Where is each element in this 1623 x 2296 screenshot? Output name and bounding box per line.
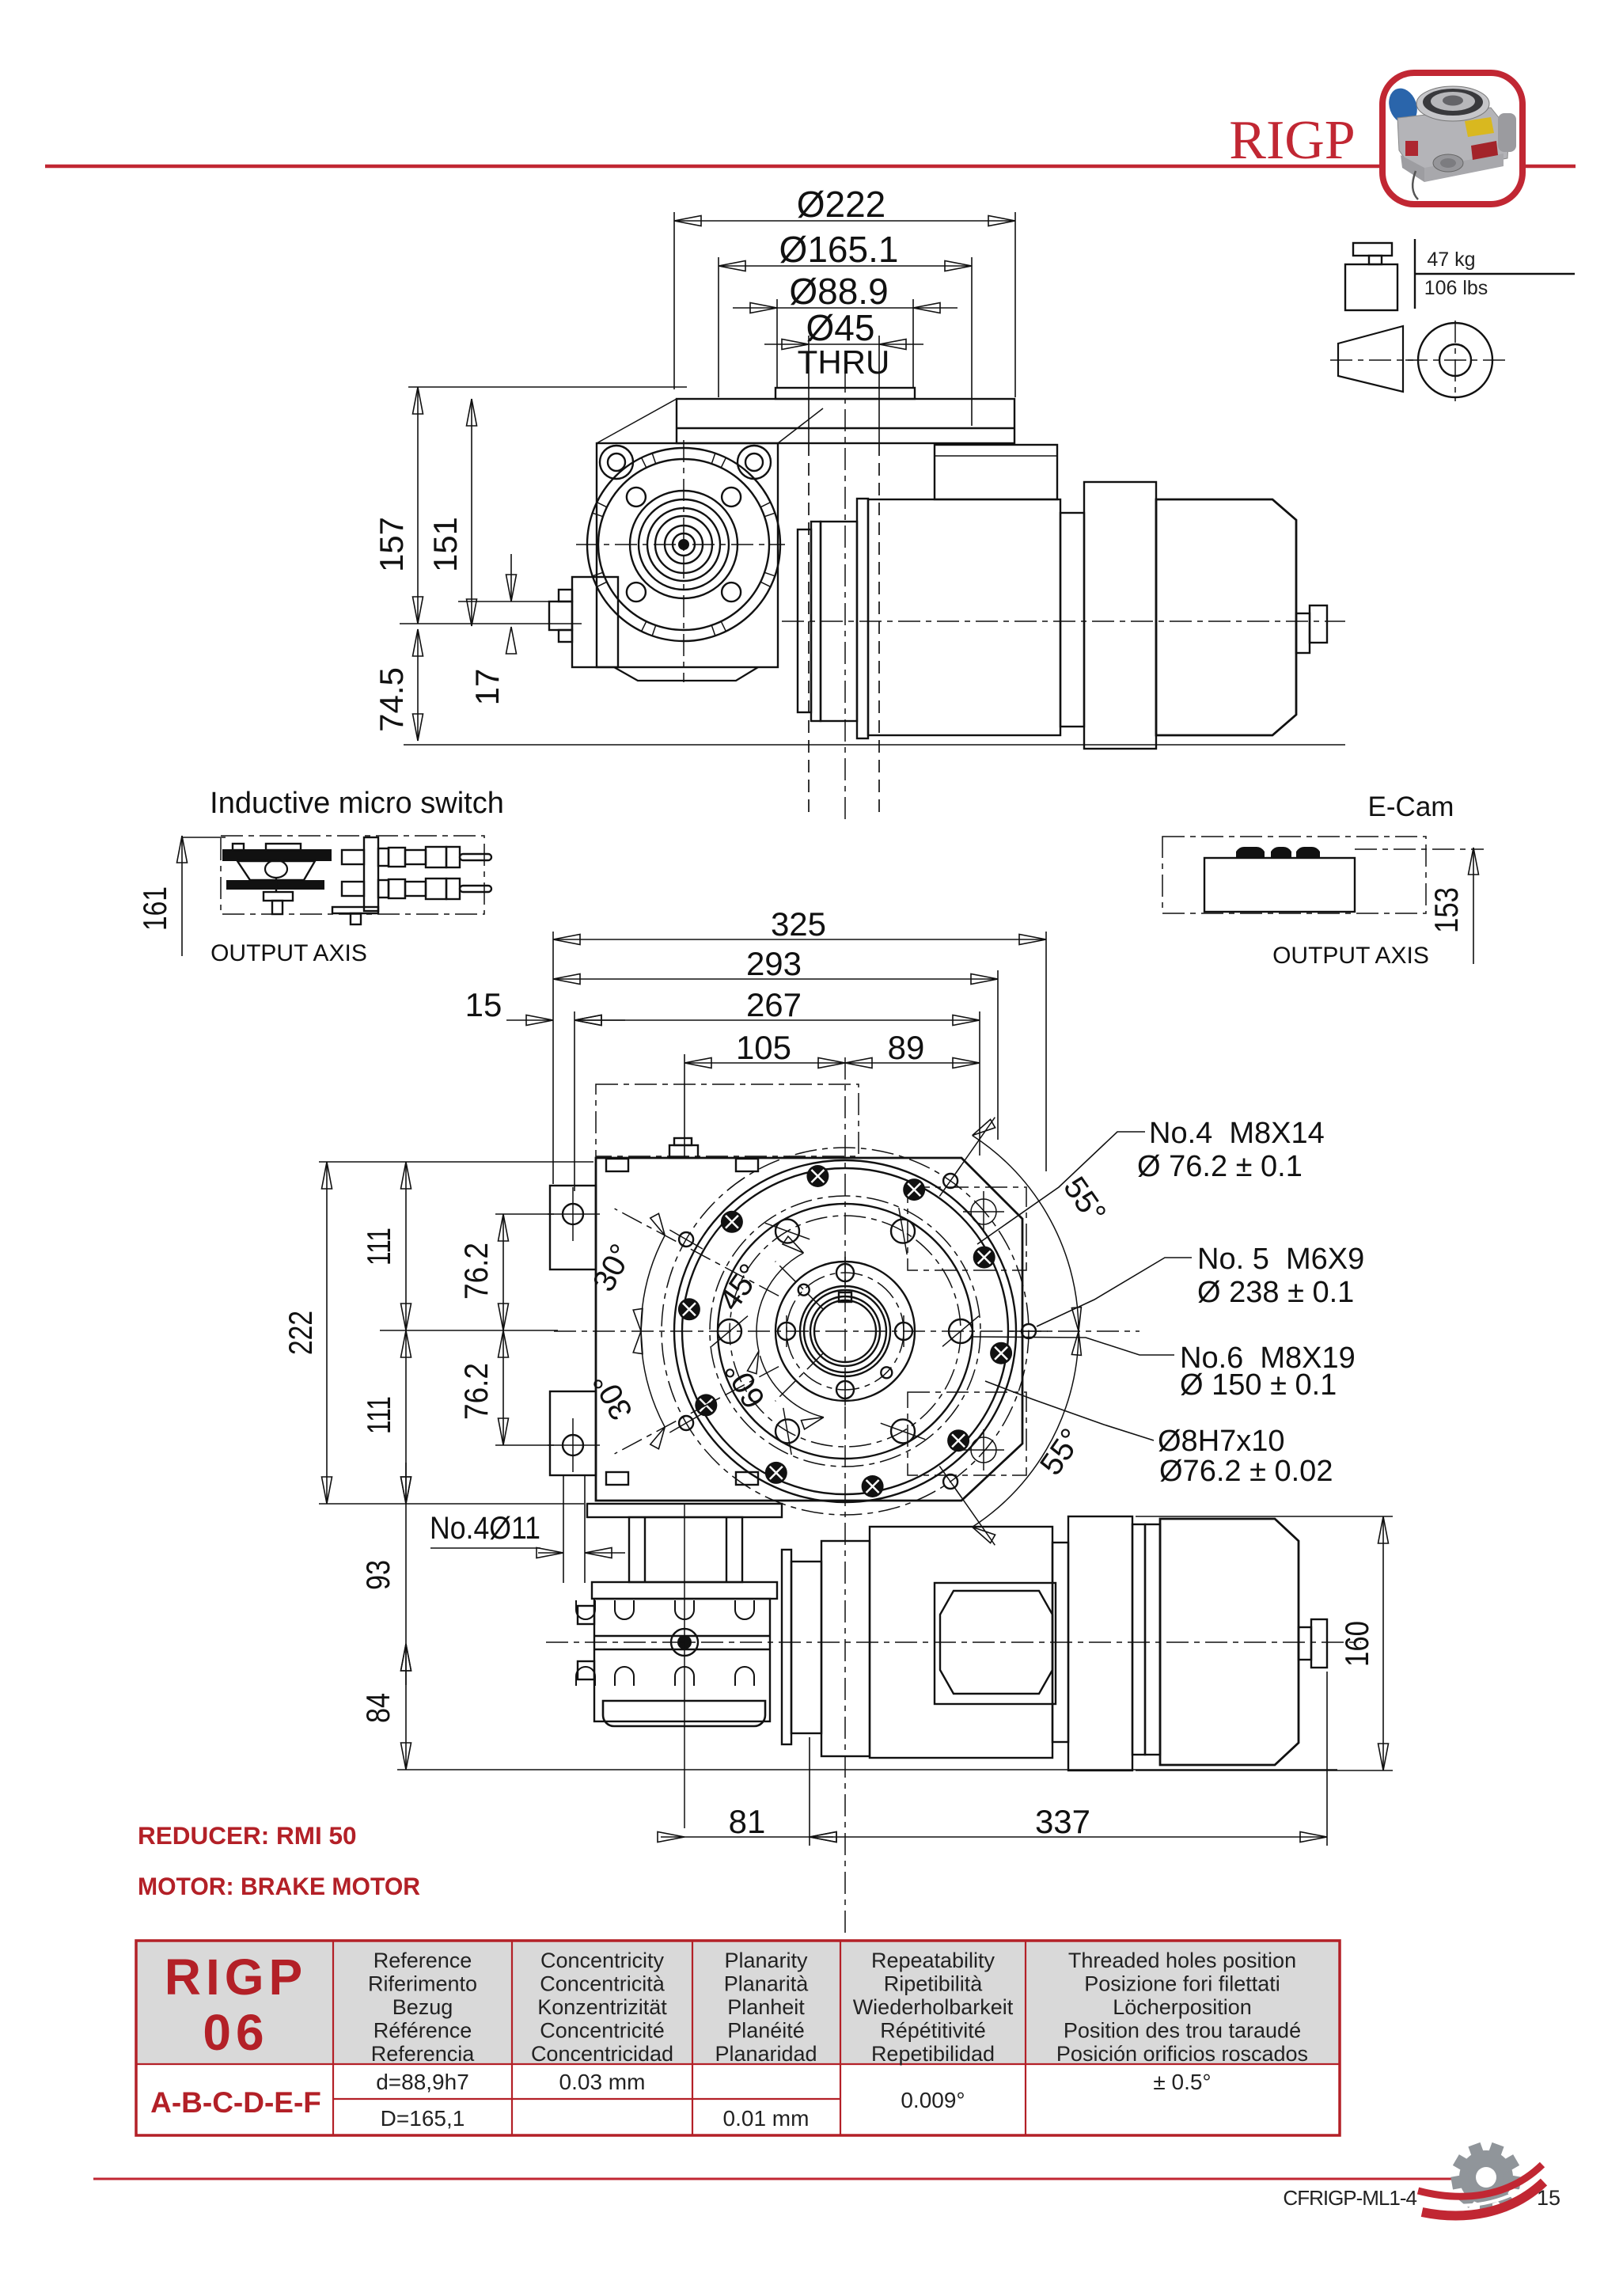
svg-text:337: 337 — [1035, 1803, 1090, 1840]
svg-text:Planarità: Planarità — [724, 1972, 810, 1996]
svg-text:157: 157 — [373, 517, 410, 572]
svg-text:A-B-C-D-E-F: A-B-C-D-E-F — [150, 2086, 321, 2119]
svg-text:111: 111 — [360, 1396, 397, 1434]
svg-text:Concentricity: Concentricity — [540, 1949, 665, 1972]
svg-text:Ripetibilità: Ripetibilità — [884, 1972, 984, 1996]
svg-text:15: 15 — [1537, 2186, 1560, 2210]
svg-text:Inductive micro switch: Inductive micro switch — [210, 787, 504, 820]
svg-text:No.4 M8X14: No.4 M8X14 — [1149, 1117, 1325, 1150]
svg-text:47 kg: 47 kg — [1427, 249, 1475, 271]
svg-text:153: 153 — [1428, 887, 1465, 933]
svg-text:Löcherposition: Löcherposition — [1113, 1995, 1252, 2019]
svg-text:RIGP: RIGP — [1229, 110, 1355, 171]
svg-text:Repeatability: Repeatability — [871, 1949, 995, 1972]
svg-text:84: 84 — [359, 1693, 396, 1723]
svg-text:Referencia: Referencia — [371, 2042, 476, 2066]
svg-text:Bezug: Bezug — [392, 1995, 453, 2019]
svg-text:Concentricità: Concentricità — [540, 1972, 666, 1996]
svg-text:No.4Ø11: No.4Ø11 — [430, 1511, 540, 1546]
svg-text:76.2: 76.2 — [457, 1243, 495, 1300]
svg-text:76.2: 76.2 — [457, 1363, 495, 1420]
svg-text:Concentricité: Concentricité — [540, 2019, 665, 2043]
svg-text:222: 222 — [282, 1311, 319, 1355]
svg-text:Référence: Référence — [374, 2019, 472, 2043]
svg-text:Ø45: Ø45 — [806, 307, 875, 348]
svg-text:Position des trou taraudé: Position des trou taraudé — [1064, 2019, 1301, 2043]
svg-text:60°: 60° — [719, 1355, 772, 1414]
svg-text:55°: 55° — [1033, 1422, 1090, 1482]
svg-text:Ø165.1: Ø165.1 — [779, 229, 899, 270]
svg-text:No. 5 M6X9: No. 5 M6X9 — [1197, 1243, 1364, 1276]
svg-text:Konzentrizität: Konzentrizität — [537, 1995, 667, 2019]
svg-text:267: 267 — [746, 986, 802, 1023]
svg-text:D=165,1: D=165,1 — [381, 2106, 465, 2131]
svg-text:Ø 238 ± 0.1: Ø 238 ± 0.1 — [1197, 1276, 1354, 1309]
svg-text:Posición orificios roscados: Posición orificios roscados — [1056, 2042, 1308, 2066]
svg-text:293: 293 — [746, 945, 802, 982]
svg-text:Threaded holes position: Threaded holes position — [1068, 1949, 1296, 1972]
svg-text:Répétitivité: Répétitivité — [880, 2019, 986, 2043]
svg-text:Ø76.2 ± 0.02: Ø76.2 ± 0.02 — [1159, 1455, 1333, 1488]
svg-text:OUTPUT AXIS: OUTPUT AXIS — [210, 940, 367, 966]
svg-text:0.01 mm: 0.01 mm — [723, 2106, 810, 2131]
svg-text:55°: 55° — [1056, 1171, 1113, 1230]
svg-text:Planéité: Planéité — [727, 2019, 805, 2043]
svg-text:106 lbs: 106 lbs — [1424, 277, 1488, 299]
svg-text:Planheit: Planheit — [727, 1995, 805, 2019]
svg-text:Planaridad: Planaridad — [715, 2042, 817, 2066]
svg-text:d=88,9h7: d=88,9h7 — [376, 2070, 469, 2094]
svg-text:Planarity: Planarity — [724, 1949, 808, 1972]
svg-text:THRU: THRU — [798, 343, 890, 381]
svg-text:CFRIGP-ML1-4: CFRIGP-ML1-4 — [1283, 2186, 1416, 2210]
svg-text:Wiederholbarkeit: Wiederholbarkeit — [853, 1995, 1014, 2019]
svg-text:74.5: 74.5 — [373, 667, 410, 732]
svg-text:93: 93 — [359, 1560, 396, 1590]
svg-text:06: 06 — [203, 2004, 268, 2061]
svg-text:161: 161 — [136, 886, 173, 931]
svg-text:Repetibilidad: Repetibilidad — [871, 2042, 995, 2066]
svg-text:15: 15 — [465, 986, 502, 1023]
svg-text:81: 81 — [729, 1803, 766, 1840]
svg-text:± 0.5°: ± 0.5° — [1153, 2070, 1211, 2094]
svg-text:30°: 30° — [586, 1239, 639, 1297]
svg-text:151: 151 — [427, 517, 464, 572]
svg-text:OUTPUT AXIS: OUTPUT AXIS — [1272, 943, 1429, 969]
svg-text:Ø 76.2 ± 0.1: Ø 76.2 ± 0.1 — [1137, 1150, 1303, 1183]
svg-text:105: 105 — [736, 1029, 791, 1066]
svg-text:0.009°: 0.009° — [901, 2088, 965, 2112]
svg-text:111: 111 — [360, 1228, 397, 1266]
svg-text:Ø88.9: Ø88.9 — [789, 271, 888, 312]
svg-text:Ø 150 ± 0.1: Ø 150 ± 0.1 — [1180, 1368, 1337, 1402]
svg-text:89: 89 — [888, 1029, 925, 1066]
svg-text:REDUCER: RMI 50: REDUCER: RMI 50 — [138, 1821, 357, 1850]
svg-text:Ø222: Ø222 — [797, 184, 886, 225]
svg-text:17: 17 — [468, 669, 506, 706]
svg-text:Concentricidad: Concentricidad — [531, 2042, 673, 2066]
svg-text:E-Cam: E-Cam — [1368, 791, 1454, 822]
svg-text:325: 325 — [771, 905, 826, 943]
svg-text:Posizione fori filettati: Posizione fori filettati — [1084, 1972, 1280, 1996]
svg-text:MOTOR: BRAKE MOTOR: MOTOR: BRAKE MOTOR — [138, 1872, 420, 1900]
svg-text:30°: 30° — [586, 1367, 639, 1425]
svg-text:Riferimento: Riferimento — [368, 1972, 477, 1996]
svg-text:160: 160 — [1338, 1621, 1375, 1667]
svg-text:Reference: Reference — [374, 1949, 472, 1972]
svg-text:0.03 mm: 0.03 mm — [559, 2070, 646, 2094]
svg-text:RIGP: RIGP — [165, 1949, 307, 2006]
svg-text:Ø8H7x10: Ø8H7x10 — [1158, 1425, 1285, 1458]
